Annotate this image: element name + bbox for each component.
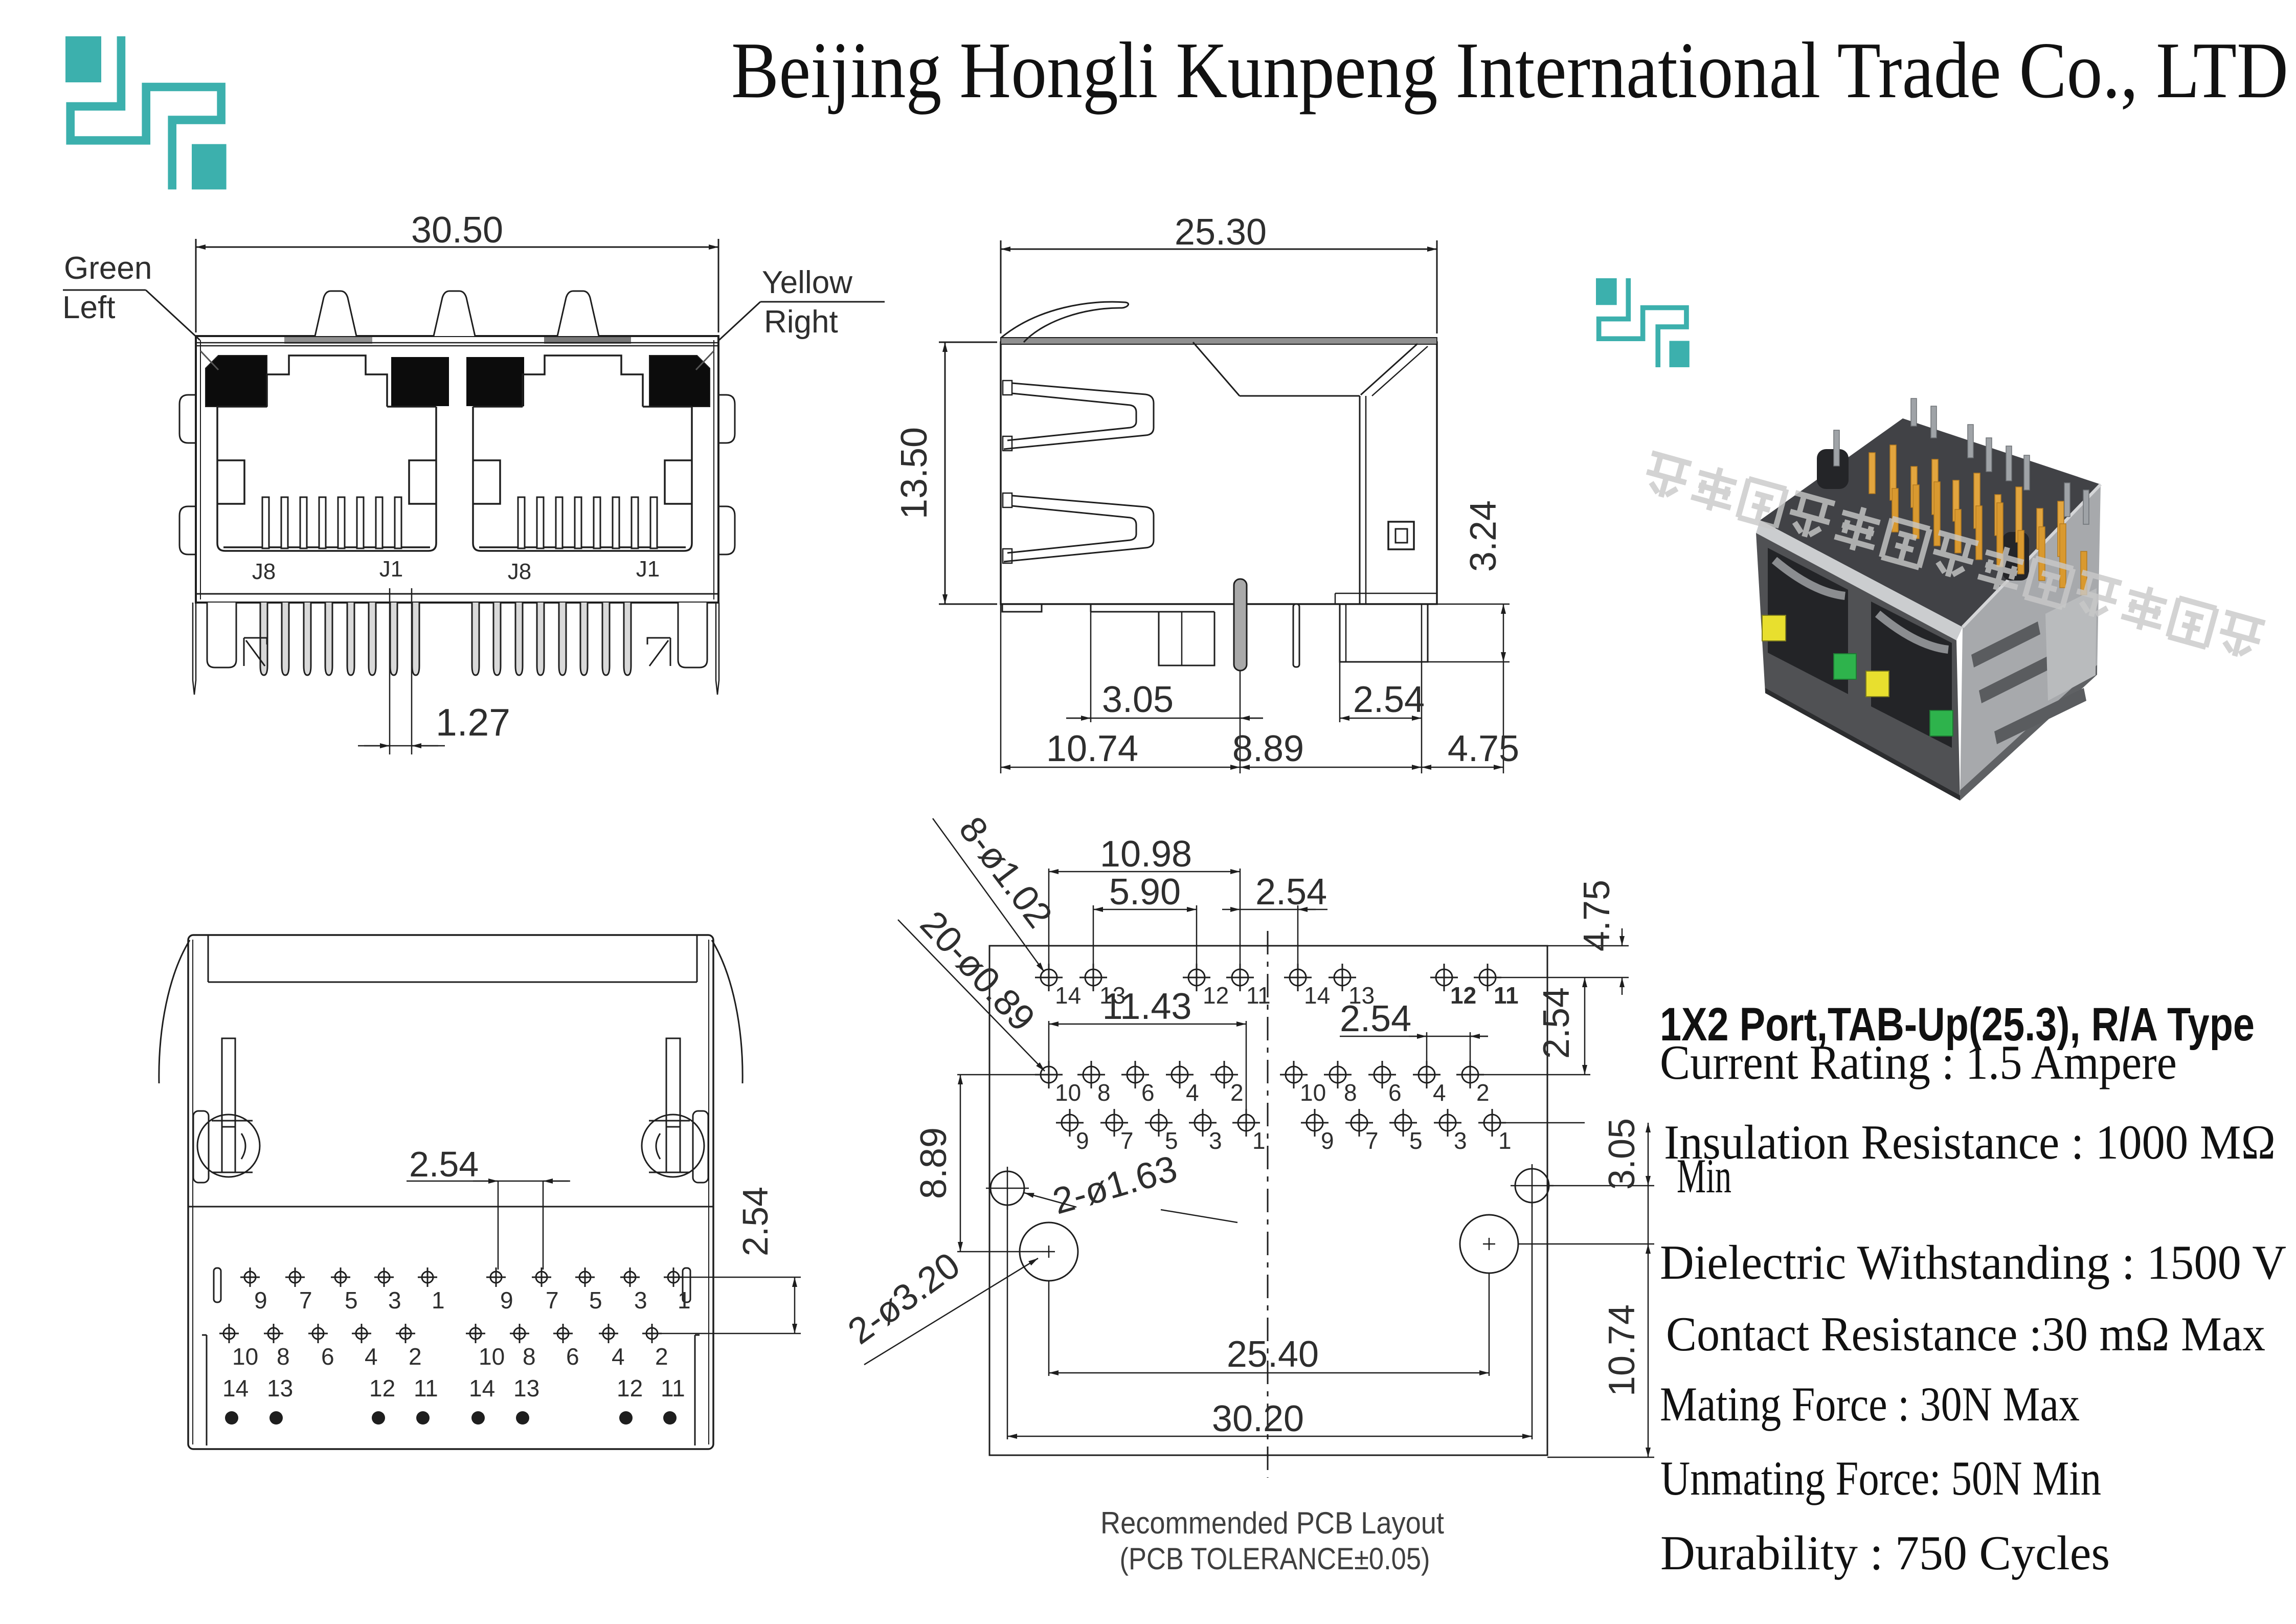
- svg-text:4: 4: [1433, 1079, 1446, 1106]
- svg-text:2.54: 2.54: [1536, 987, 1577, 1059]
- svg-text:13.50: 13.50: [894, 427, 935, 519]
- svg-text:12: 12: [1203, 982, 1229, 1009]
- svg-text:Green: Green: [64, 251, 152, 286]
- svg-text:Unmating Force: 50N Min: Unmating Force: 50N Min: [1660, 1451, 2101, 1505]
- svg-text:6: 6: [1388, 1079, 1402, 1106]
- svg-text:J1: J1: [379, 557, 403, 582]
- svg-text:10: 10: [1300, 1079, 1326, 1106]
- svg-text:10.74: 10.74: [1046, 728, 1138, 769]
- svg-text:10: 10: [479, 1343, 505, 1370]
- svg-text:2: 2: [1230, 1079, 1244, 1106]
- svg-text:3.05: 3.05: [1102, 679, 1174, 720]
- svg-text:10: 10: [232, 1343, 258, 1370]
- svg-text:8: 8: [1344, 1079, 1357, 1106]
- svg-text:3: 3: [634, 1287, 647, 1314]
- svg-text:9: 9: [500, 1287, 513, 1314]
- svg-text:2: 2: [1476, 1079, 1490, 1106]
- svg-text:3: 3: [1209, 1127, 1222, 1154]
- svg-text:8: 8: [277, 1343, 290, 1370]
- svg-text:12: 12: [617, 1375, 643, 1401]
- svg-text:14: 14: [222, 1375, 249, 1401]
- svg-text:25.30: 25.30: [1175, 212, 1267, 253]
- svg-text:25.40: 25.40: [1227, 1334, 1319, 1375]
- svg-text:9: 9: [254, 1287, 267, 1314]
- svg-text:7: 7: [1120, 1127, 1134, 1154]
- svg-text:Current Rating : 1.5 Ampere: Current Rating : 1.5 Ampere: [1660, 1035, 2177, 1089]
- svg-text:3.24: 3.24: [1463, 500, 1504, 572]
- svg-text:2.54: 2.54: [1353, 679, 1425, 720]
- svg-text:Durability : 750 Cycles: Durability : 750 Cycles: [1660, 1526, 2110, 1580]
- svg-text:Right: Right: [764, 304, 838, 340]
- svg-text:5.90: 5.90: [1109, 872, 1181, 913]
- svg-text:J1: J1: [636, 557, 660, 582]
- svg-text:8.89: 8.89: [913, 1127, 954, 1199]
- svg-text:1: 1: [1252, 1127, 1266, 1154]
- svg-text:5: 5: [1409, 1127, 1423, 1154]
- svg-text:Left: Left: [62, 290, 115, 325]
- svg-text:11: 11: [1246, 982, 1271, 1009]
- svg-text:2.54: 2.54: [1255, 872, 1327, 913]
- svg-text:30.20: 30.20: [1212, 1398, 1304, 1439]
- svg-text:5: 5: [589, 1287, 602, 1314]
- svg-text:1.27: 1.27: [436, 701, 510, 744]
- svg-text:14: 14: [1304, 982, 1330, 1009]
- svg-text:6: 6: [566, 1343, 579, 1370]
- svg-text:Min: Min: [1677, 1149, 1731, 1203]
- svg-text:7: 7: [299, 1287, 312, 1314]
- svg-text:J8: J8: [508, 559, 531, 584]
- svg-text:11: 11: [1494, 982, 1519, 1009]
- svg-text:10: 10: [1055, 1079, 1081, 1106]
- svg-text:11.43: 11.43: [1102, 986, 1192, 1027]
- svg-text:7: 7: [546, 1287, 559, 1314]
- svg-text:8: 8: [1097, 1079, 1111, 1106]
- svg-text:Mating Force : 30N Max: Mating Force : 30N Max: [1660, 1377, 2080, 1431]
- svg-text:4: 4: [365, 1343, 378, 1370]
- svg-text:J8: J8: [252, 559, 276, 584]
- svg-text:10.98: 10.98: [1100, 834, 1192, 875]
- svg-text:6: 6: [321, 1343, 334, 1370]
- svg-text:6: 6: [1141, 1079, 1155, 1106]
- svg-text:Yellow: Yellow: [762, 265, 852, 300]
- svg-text:12: 12: [369, 1375, 395, 1401]
- svg-text:4.75: 4.75: [1577, 880, 1617, 951]
- svg-text:3: 3: [1454, 1127, 1467, 1154]
- svg-text:1: 1: [678, 1287, 691, 1314]
- svg-text:9: 9: [1321, 1127, 1334, 1154]
- svg-text:3.05: 3.05: [1602, 1118, 1642, 1190]
- svg-text:4: 4: [1186, 1079, 1199, 1106]
- svg-text:(PCB TOLERANCE±0.05): (PCB TOLERANCE±0.05): [1120, 1542, 1430, 1576]
- svg-text:7: 7: [1365, 1127, 1379, 1154]
- svg-text:11: 11: [661, 1375, 685, 1401]
- svg-text:14: 14: [1055, 982, 1081, 1009]
- svg-text:Recommended PCB Layout: Recommended PCB Layout: [1100, 1506, 1444, 1540]
- svg-text:2: 2: [655, 1343, 668, 1370]
- svg-text:4.75: 4.75: [1448, 728, 1519, 769]
- svg-text:1: 1: [1498, 1127, 1512, 1154]
- svg-text:2.54: 2.54: [409, 1144, 479, 1184]
- svg-text:8: 8: [523, 1343, 536, 1370]
- svg-text:Insulation Resistance : 1000 M: Insulation Resistance : 1000 MΩ: [1664, 1115, 2276, 1169]
- svg-text:2.54: 2.54: [735, 1187, 775, 1256]
- svg-text:8.89: 8.89: [1232, 728, 1304, 769]
- svg-text:13: 13: [267, 1375, 293, 1401]
- svg-text:5: 5: [345, 1287, 358, 1314]
- svg-text:13: 13: [513, 1375, 539, 1401]
- svg-text:30.50: 30.50: [411, 210, 503, 251]
- svg-text:14: 14: [469, 1375, 495, 1401]
- svg-text:9: 9: [1076, 1127, 1089, 1154]
- svg-text:Contact Resistance :30 mΩ Max: Contact Resistance :30 mΩ Max: [1666, 1307, 2265, 1361]
- svg-text:Beijing Hongli Kunpeng Interna: Beijing Hongli Kunpeng International Tra…: [731, 26, 2288, 115]
- svg-text:2: 2: [409, 1343, 422, 1370]
- svg-text:12: 12: [1450, 982, 1476, 1009]
- svg-text:Dielectric Withstanding : 1500: Dielectric Withstanding : 1500 V: [1660, 1235, 2286, 1289]
- svg-text:11: 11: [414, 1375, 438, 1401]
- svg-text:3: 3: [388, 1287, 401, 1314]
- svg-text:2.54: 2.54: [1340, 998, 1411, 1039]
- svg-text:1: 1: [432, 1287, 445, 1314]
- svg-text:4: 4: [612, 1343, 625, 1370]
- svg-text:10.74: 10.74: [1602, 1304, 1642, 1396]
